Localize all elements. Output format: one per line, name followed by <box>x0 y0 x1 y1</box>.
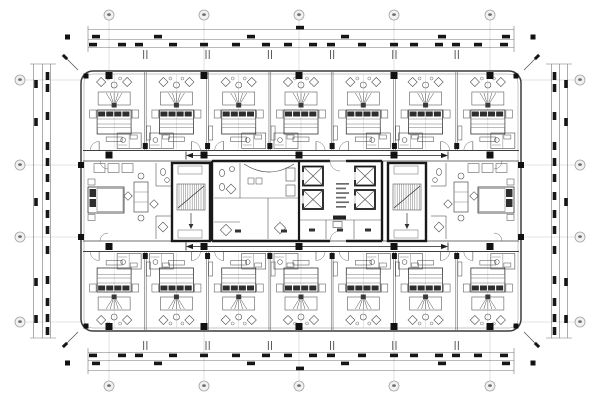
column <box>296 152 303 159</box>
pillow <box>309 112 316 117</box>
dimension-text-blob <box>296 26 304 30</box>
dimension-text-blob <box>34 315 38 323</box>
dimension-text-blob <box>553 327 557 335</box>
pillow <box>185 286 192 291</box>
pillow <box>496 286 503 291</box>
grid-bubble-label <box>488 13 492 16</box>
column <box>78 162 84 168</box>
column <box>201 243 208 250</box>
dimension-text-blob <box>553 158 557 166</box>
column <box>201 323 208 330</box>
column <box>487 72 494 79</box>
grid-bubble-label <box>18 78 22 81</box>
pillow <box>160 112 167 117</box>
dimension-text-blob <box>564 315 568 323</box>
dimension-text-blob <box>92 35 100 39</box>
grid-bubble-label <box>488 384 492 387</box>
column <box>391 72 398 79</box>
dimension-text-blob <box>46 246 50 254</box>
dimension-text-blob <box>341 362 349 366</box>
pillow <box>347 112 354 117</box>
dimension-text-blob <box>46 210 50 218</box>
duct-column <box>454 253 459 259</box>
grid-bubble-label <box>578 163 582 166</box>
dimension-text-blob <box>553 246 557 254</box>
chair-seat <box>174 295 179 300</box>
dimension-text-blob <box>564 278 568 286</box>
dimension-end-marker <box>65 361 70 366</box>
pillow <box>434 286 441 291</box>
pillow <box>363 286 370 291</box>
pillow <box>114 112 121 117</box>
pillow <box>418 112 425 117</box>
pillow <box>285 286 292 291</box>
column <box>487 243 494 250</box>
dimension-text-blob <box>284 43 292 47</box>
dimension-text-blob <box>553 174 557 182</box>
illegible-label <box>333 216 346 220</box>
dimension-text-blob <box>232 43 240 47</box>
dimension-text-blob <box>553 112 557 120</box>
column <box>487 152 494 159</box>
floor-plan-canvas <box>0 0 600 400</box>
dimension-text-blob <box>553 142 557 150</box>
dimension-text-blob <box>46 226 50 234</box>
dimension-text-blob <box>438 362 446 366</box>
dimension-text-blob <box>358 43 366 47</box>
grid-bubble-label <box>18 320 22 323</box>
pillow <box>293 286 300 291</box>
duct-column <box>143 253 148 259</box>
column <box>296 323 303 330</box>
dimension-text-blob <box>262 43 270 47</box>
pillow <box>309 286 316 291</box>
dimension-text-blob <box>553 298 557 306</box>
column <box>84 74 89 79</box>
dimension-text-blob <box>553 84 557 92</box>
pillow <box>426 112 433 117</box>
dimension-text-blob <box>341 35 349 39</box>
dimension-text-blob <box>169 354 177 358</box>
dimension-text-blob <box>284 354 292 358</box>
dimension-text-blob <box>135 43 143 47</box>
pillow <box>231 112 238 117</box>
dimension-text-blob <box>452 43 460 47</box>
dimension-text-blob <box>438 35 446 39</box>
pillow <box>293 112 300 117</box>
dimension-text-blob <box>34 278 38 286</box>
pillow <box>496 112 503 117</box>
pillow <box>506 189 513 197</box>
pillow <box>410 112 417 117</box>
illegible-text-line <box>336 197 346 199</box>
dimension-text-blob <box>46 314 50 322</box>
dimension-text-blob <box>92 362 100 366</box>
pillow <box>488 286 495 291</box>
dimension-text-blob <box>154 35 162 39</box>
pillow <box>472 112 479 117</box>
dimension-text-blob <box>553 226 557 234</box>
dimension-text-blob <box>309 354 317 358</box>
pillow <box>355 286 362 291</box>
dimension-text-blob <box>358 354 366 358</box>
pillow <box>98 286 105 291</box>
dimension-text-blob <box>232 354 240 358</box>
dimension-text-blob <box>564 118 568 126</box>
column <box>514 324 519 329</box>
pillow <box>418 286 425 291</box>
pillow <box>434 112 441 117</box>
pillow <box>169 286 176 291</box>
dimension-text-blob <box>135 354 143 358</box>
dimension-text-blob <box>46 276 50 284</box>
dimension-text-blob <box>46 84 50 92</box>
pillow <box>114 286 121 291</box>
column <box>106 243 113 250</box>
grid-bubble-label <box>18 163 22 166</box>
dimension-text-blob <box>46 192 50 200</box>
pillow <box>480 112 487 117</box>
dimension-text-blob <box>46 174 50 182</box>
chair-seat <box>361 295 366 300</box>
grid-bubble-label <box>107 13 111 16</box>
pillow <box>239 112 246 117</box>
pillow <box>372 286 379 291</box>
illegible-room-label <box>309 229 315 232</box>
dimension-end-marker <box>531 361 536 366</box>
grid-bubble-label <box>107 384 111 387</box>
pillow <box>106 112 113 117</box>
illegible-room-label <box>235 230 241 233</box>
chair-seat <box>236 103 241 108</box>
pillow <box>372 112 379 117</box>
pillow <box>247 112 254 117</box>
column <box>518 234 524 240</box>
dimension-text-blob <box>46 327 50 335</box>
dimension-text-blob <box>34 198 38 206</box>
dimension-text-blob <box>474 43 482 47</box>
column <box>487 323 494 330</box>
dimension-text-blob <box>34 80 38 88</box>
pillow <box>98 112 105 117</box>
chair-seat <box>485 103 490 108</box>
chair-seat <box>112 103 117 108</box>
chair-seat <box>423 295 428 300</box>
dimension-text-blob <box>118 43 126 47</box>
pillow <box>410 286 417 291</box>
dimension-text-blob <box>309 43 317 47</box>
dimension-end-marker <box>531 35 536 40</box>
column <box>78 234 84 240</box>
dimension-text-blob <box>154 362 162 366</box>
dimension-text-blob <box>502 35 510 39</box>
chair-seat <box>485 295 490 300</box>
pillow <box>177 112 184 117</box>
dimension-text-blob <box>46 112 50 120</box>
chair-seat <box>236 295 241 300</box>
dimension-text-blob <box>564 198 568 206</box>
duct-column <box>330 143 335 149</box>
dimension-text-blob <box>500 43 508 47</box>
pillow <box>247 286 254 291</box>
pillow <box>506 199 513 207</box>
pillow <box>177 286 184 291</box>
dimension-text-blob <box>474 354 482 358</box>
pillow <box>301 286 308 291</box>
duct-column <box>267 253 272 259</box>
illegible-text-line <box>336 201 349 203</box>
pillow <box>231 286 238 291</box>
dimension-text-blob <box>553 314 557 322</box>
duct-column <box>330 253 335 259</box>
dimension-text-blob <box>327 43 335 47</box>
dimension-text-blob <box>500 354 508 358</box>
duct-column <box>392 253 397 259</box>
grid-bubble-label <box>578 235 582 238</box>
pillow <box>301 112 308 117</box>
pillow <box>122 286 129 291</box>
column <box>296 72 303 79</box>
column <box>201 152 208 159</box>
dimension-text-blob <box>410 43 418 47</box>
duct-column <box>454 143 459 149</box>
pillow <box>90 199 97 207</box>
grid-bubble-label <box>202 13 206 16</box>
dimension-text-blob <box>200 43 208 47</box>
duct-column <box>267 143 272 149</box>
grid-bubble-label <box>297 13 301 16</box>
grid-bubble-label <box>578 320 582 323</box>
grid-bubble-label <box>578 78 582 81</box>
illegible-text-line <box>336 183 349 185</box>
duct-column <box>205 253 210 259</box>
floor-plan-drawing <box>0 0 600 400</box>
dimension-text-blob <box>34 118 38 126</box>
dimension-text-blob <box>390 43 398 47</box>
dimension-text-blob <box>296 367 304 371</box>
column <box>514 74 519 79</box>
dimension-text-blob <box>200 354 208 358</box>
pillow <box>426 286 433 291</box>
chair-seat <box>112 295 117 300</box>
illegible-text-line <box>336 188 346 190</box>
pillow <box>347 286 354 291</box>
dimension-text-blob <box>435 354 443 358</box>
dimension-text-blob <box>169 43 177 47</box>
dimension-text-blob <box>46 158 50 166</box>
dimension-text-blob <box>247 35 255 39</box>
column <box>391 152 398 159</box>
pillow <box>472 286 479 291</box>
column <box>391 323 398 330</box>
duct-column <box>143 143 148 149</box>
dimension-text-blob <box>46 142 50 150</box>
illegible-room-label <box>365 229 371 232</box>
column <box>106 323 113 330</box>
dimension-text-blob <box>553 210 557 218</box>
grid-bubble-label <box>18 235 22 238</box>
dimension-text-blob <box>390 354 398 358</box>
pillow <box>122 112 129 117</box>
pillow <box>106 286 113 291</box>
illegible-text-line <box>336 192 349 194</box>
column <box>106 72 113 79</box>
chair-seat <box>299 103 304 108</box>
dimension-text-blob <box>410 354 418 358</box>
duct-column <box>205 143 210 149</box>
pillow <box>185 112 192 117</box>
dimension-text-blob <box>89 354 97 358</box>
column <box>106 152 113 159</box>
dimension-text-blob <box>435 43 443 47</box>
illegible-text-line <box>336 206 346 208</box>
chair-seat <box>361 103 366 108</box>
dimension-text-blob <box>502 362 510 366</box>
dimension-text-blob <box>327 354 335 358</box>
column <box>201 72 208 79</box>
dimension-text-blob <box>553 72 557 80</box>
chair-seat <box>423 103 428 108</box>
pillow <box>355 112 362 117</box>
dimension-text-blob <box>89 43 97 47</box>
pillow <box>90 189 97 197</box>
dimension-text-blob <box>452 354 460 358</box>
dimension-text-blob <box>564 80 568 88</box>
pillow <box>285 112 292 117</box>
chair-seat <box>299 295 304 300</box>
pillow <box>480 286 487 291</box>
pillow <box>239 286 246 291</box>
illegible-room-label <box>281 230 287 233</box>
column <box>296 243 303 250</box>
duct-column <box>392 143 397 149</box>
dimension-text-blob <box>553 276 557 284</box>
grid-bubble-label <box>202 384 206 387</box>
grid-bubble-label <box>392 13 396 16</box>
dimension-text-blob <box>46 298 50 306</box>
dimension-text-blob <box>118 354 126 358</box>
grid-bubble-label <box>297 384 301 387</box>
column <box>84 324 89 329</box>
dimension-text-blob <box>262 354 270 358</box>
dimension-end-marker <box>65 35 70 40</box>
pillow <box>223 286 230 291</box>
column <box>518 162 524 168</box>
column <box>391 243 398 250</box>
pillow <box>160 286 167 291</box>
pillow <box>488 112 495 117</box>
dimension-text-blob <box>46 72 50 80</box>
pillow <box>363 112 370 117</box>
illegible-room-label <box>337 229 343 232</box>
chair-seat <box>174 103 179 108</box>
pillow <box>169 112 176 117</box>
grid-bubble-label <box>392 384 396 387</box>
dimension-text-blob <box>553 192 557 200</box>
pillow <box>223 112 230 117</box>
dimension-text-blob <box>247 362 255 366</box>
